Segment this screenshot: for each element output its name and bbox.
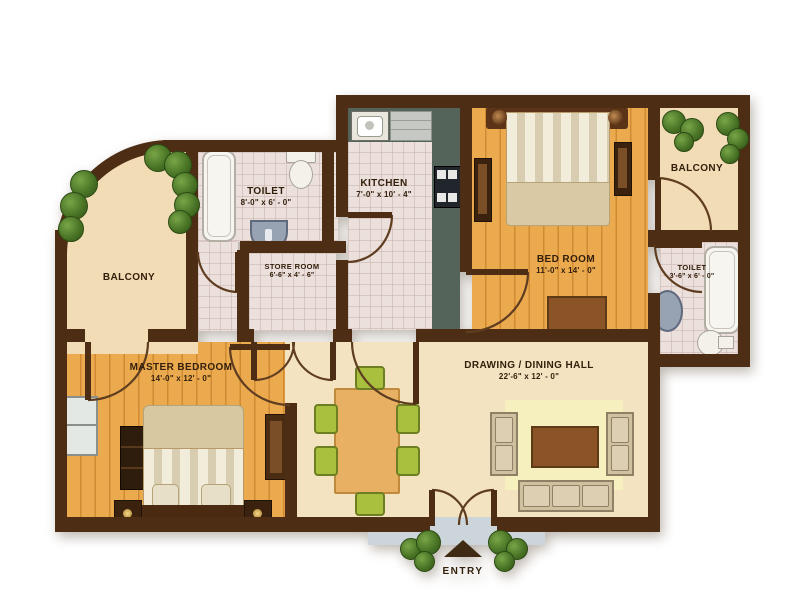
bush-icon <box>494 551 515 572</box>
dining-chair <box>355 366 385 390</box>
stove-icon <box>434 166 461 208</box>
wall <box>648 95 660 180</box>
window-icon <box>64 396 98 456</box>
room-dims: 11'-0" x 14' - 0" <box>536 266 596 275</box>
bush-icon <box>414 551 435 572</box>
room-name: STORE ROOM <box>264 262 319 271</box>
wall <box>55 230 67 532</box>
room-dims: 6'-6" x 4' - 6" <box>264 272 319 279</box>
room-name: TOILET <box>241 186 292 197</box>
bedside-table <box>614 142 632 196</box>
wall <box>648 230 750 242</box>
toilet-wc-tank <box>718 336 734 349</box>
room-label-bedroom: BED ROOM 11'-0" x 14' - 0" <box>536 254 596 275</box>
entry-label-text: ENTRY <box>442 566 483 577</box>
room-label-balcony-right: BALCONY <box>671 163 723 174</box>
room-label-master-bedroom: MASTER BEDROOM 14'-0" x 12' - 0" <box>130 362 233 383</box>
room-label-hall: DRAWING / DINING HALL 22'-6" x 12' - 0" <box>464 360 594 381</box>
wall <box>336 260 348 342</box>
room-dims: 7'-0" x 10' - 4" <box>356 190 412 199</box>
room-label-kitchen: KITCHEN 7'-0" x 10' - 4" <box>356 178 412 199</box>
room-dims: 22'-6" x 12' - 0" <box>464 372 594 381</box>
wall <box>648 293 660 532</box>
bush-icon <box>720 144 740 164</box>
room-label-store: STORE ROOM 6'-6" x 4' - 6" <box>264 262 319 279</box>
wall <box>285 403 297 530</box>
wall <box>336 95 348 217</box>
bush-icon <box>168 210 192 234</box>
wall <box>338 95 750 108</box>
wall <box>497 517 660 532</box>
wall <box>460 95 472 272</box>
bush-icon <box>58 216 84 242</box>
kitchen-shelf <box>390 111 432 141</box>
room-dims: 3'-6" x 6' - 0" <box>670 273 715 280</box>
kitchen-counter-side <box>432 108 460 330</box>
wall <box>237 250 249 342</box>
bedside-table <box>474 158 492 222</box>
bush-icon <box>674 132 694 152</box>
dining-chair <box>314 404 338 434</box>
dining-table <box>334 388 400 494</box>
entry-label: ENTRY <box>442 566 483 577</box>
wall <box>416 329 660 342</box>
kitchen-sink <box>351 111 389 141</box>
toilet-wc-icon <box>289 160 313 189</box>
floor-plan: BALCONY TOILET 8'-0" x 6' - 0" STORE ROO… <box>0 0 800 597</box>
sofa-side-chair <box>490 412 518 476</box>
bedroom-dresser <box>547 296 607 332</box>
room-dims: 8'-0" x 6' - 0" <box>241 198 292 207</box>
wall <box>55 517 430 532</box>
wall <box>648 354 750 367</box>
room-name: KITCHEN <box>356 178 412 189</box>
room-name: BED ROOM <box>536 254 596 265</box>
bed-blanket <box>506 182 610 226</box>
room-label-balcony-left: BALCONY <box>103 272 155 283</box>
bathtub-icon <box>704 246 740 334</box>
room-name: BALCONY <box>103 272 155 283</box>
bed-knob-icon <box>492 110 507 125</box>
bed-blanket <box>143 405 244 452</box>
bed-knob-icon <box>608 110 623 125</box>
sofa-side-chair <box>606 412 634 476</box>
bathtub-icon <box>202 150 236 242</box>
bed-sheet <box>506 112 610 184</box>
sofa-three-seater <box>518 480 614 512</box>
room-label-toilet-right: TOILET 3'-6" x 6' - 0" <box>670 263 715 280</box>
room-name: TOILET <box>670 263 715 272</box>
dining-chair <box>396 446 420 476</box>
coffee-table <box>531 426 599 468</box>
room-name: MASTER BEDROOM <box>130 362 233 373</box>
dining-chair <box>355 492 385 516</box>
wall <box>648 231 660 247</box>
wardrobe <box>120 426 144 490</box>
room-name: DRAWING / DINING HALL <box>464 360 594 371</box>
wall <box>322 140 334 253</box>
room-label-toilet-left: TOILET 8'-0" x 6' - 0" <box>241 186 292 207</box>
entry-arrow-icon <box>444 540 482 557</box>
room-name: BALCONY <box>671 163 723 174</box>
dining-chair <box>396 404 420 434</box>
room-dims: 14'-0" x 12' - 0" <box>130 374 233 383</box>
corridor-floor <box>198 241 238 331</box>
floor-plan-drawing: BALCONY TOILET 8'-0" x 6' - 0" STORE ROO… <box>0 0 800 597</box>
dining-chair <box>314 446 338 476</box>
